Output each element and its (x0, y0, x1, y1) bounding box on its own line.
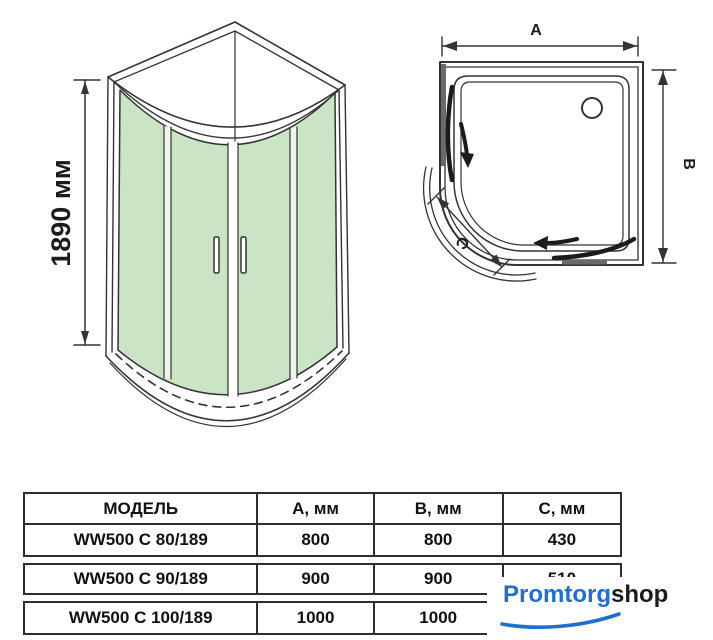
header-b: В, мм (375, 494, 504, 523)
cell-a: 1000 (258, 603, 374, 633)
top-view-diagram: A B C (424, 22, 697, 281)
header-a: А, мм (258, 494, 374, 523)
drain-icon (582, 98, 602, 118)
cell-model: WW500 C 90/189 (25, 565, 258, 593)
dimension-a: A (442, 22, 638, 56)
table-row: WW500 C 80/189 800 800 430 (23, 523, 622, 557)
dim-b-label: B (680, 158, 697, 170)
cell-a: 900 (258, 565, 374, 593)
right-frame-edge (339, 85, 349, 353)
header-c: С, мм (504, 494, 620, 523)
divider-right-gap (290, 127, 297, 379)
roof-outer (108, 22, 345, 85)
cell-b: 800 (375, 525, 504, 555)
spec-table-header-row: МОДЕЛЬ А, мм В, мм С, мм (23, 492, 622, 525)
wall-profile-bottom (562, 260, 607, 265)
cell-b: 900 (375, 565, 504, 593)
logo-swoosh-icon (500, 611, 622, 631)
wall-profile-left (441, 64, 446, 166)
left-frame-edge (106, 77, 114, 356)
logo-text-primary: Promtorg (503, 581, 611, 608)
door-handle-left (214, 237, 219, 273)
cell-b: 1000 (375, 603, 504, 633)
header-model: МОДЕЛЬ (25, 494, 258, 523)
front-height-label: 1890 мм (46, 159, 76, 267)
dimension-b: B (652, 70, 697, 263)
tray-frame-outer (440, 62, 643, 265)
height-dimension: 1890 мм (46, 80, 100, 345)
divider-left-gap (164, 126, 171, 379)
cell-model: WW500 C 100/189 (25, 603, 258, 633)
promtorgshop-logo: Promtorgshop (503, 581, 668, 609)
center-seam-gap (228, 143, 238, 396)
logo-text-secondary: shop (611, 581, 668, 608)
watermark-overlay: Promtorgshop (487, 577, 713, 640)
dim-a-label: A (530, 22, 542, 39)
door-handle-right (241, 237, 246, 273)
cell-a: 800 (258, 525, 374, 555)
cell-model: WW500 C 80/189 (25, 525, 258, 555)
cell-c: 430 (504, 525, 620, 555)
product-spec-image: 1890 мм (0, 0, 713, 640)
front-view-diagram: 1890 мм (46, 22, 349, 427)
